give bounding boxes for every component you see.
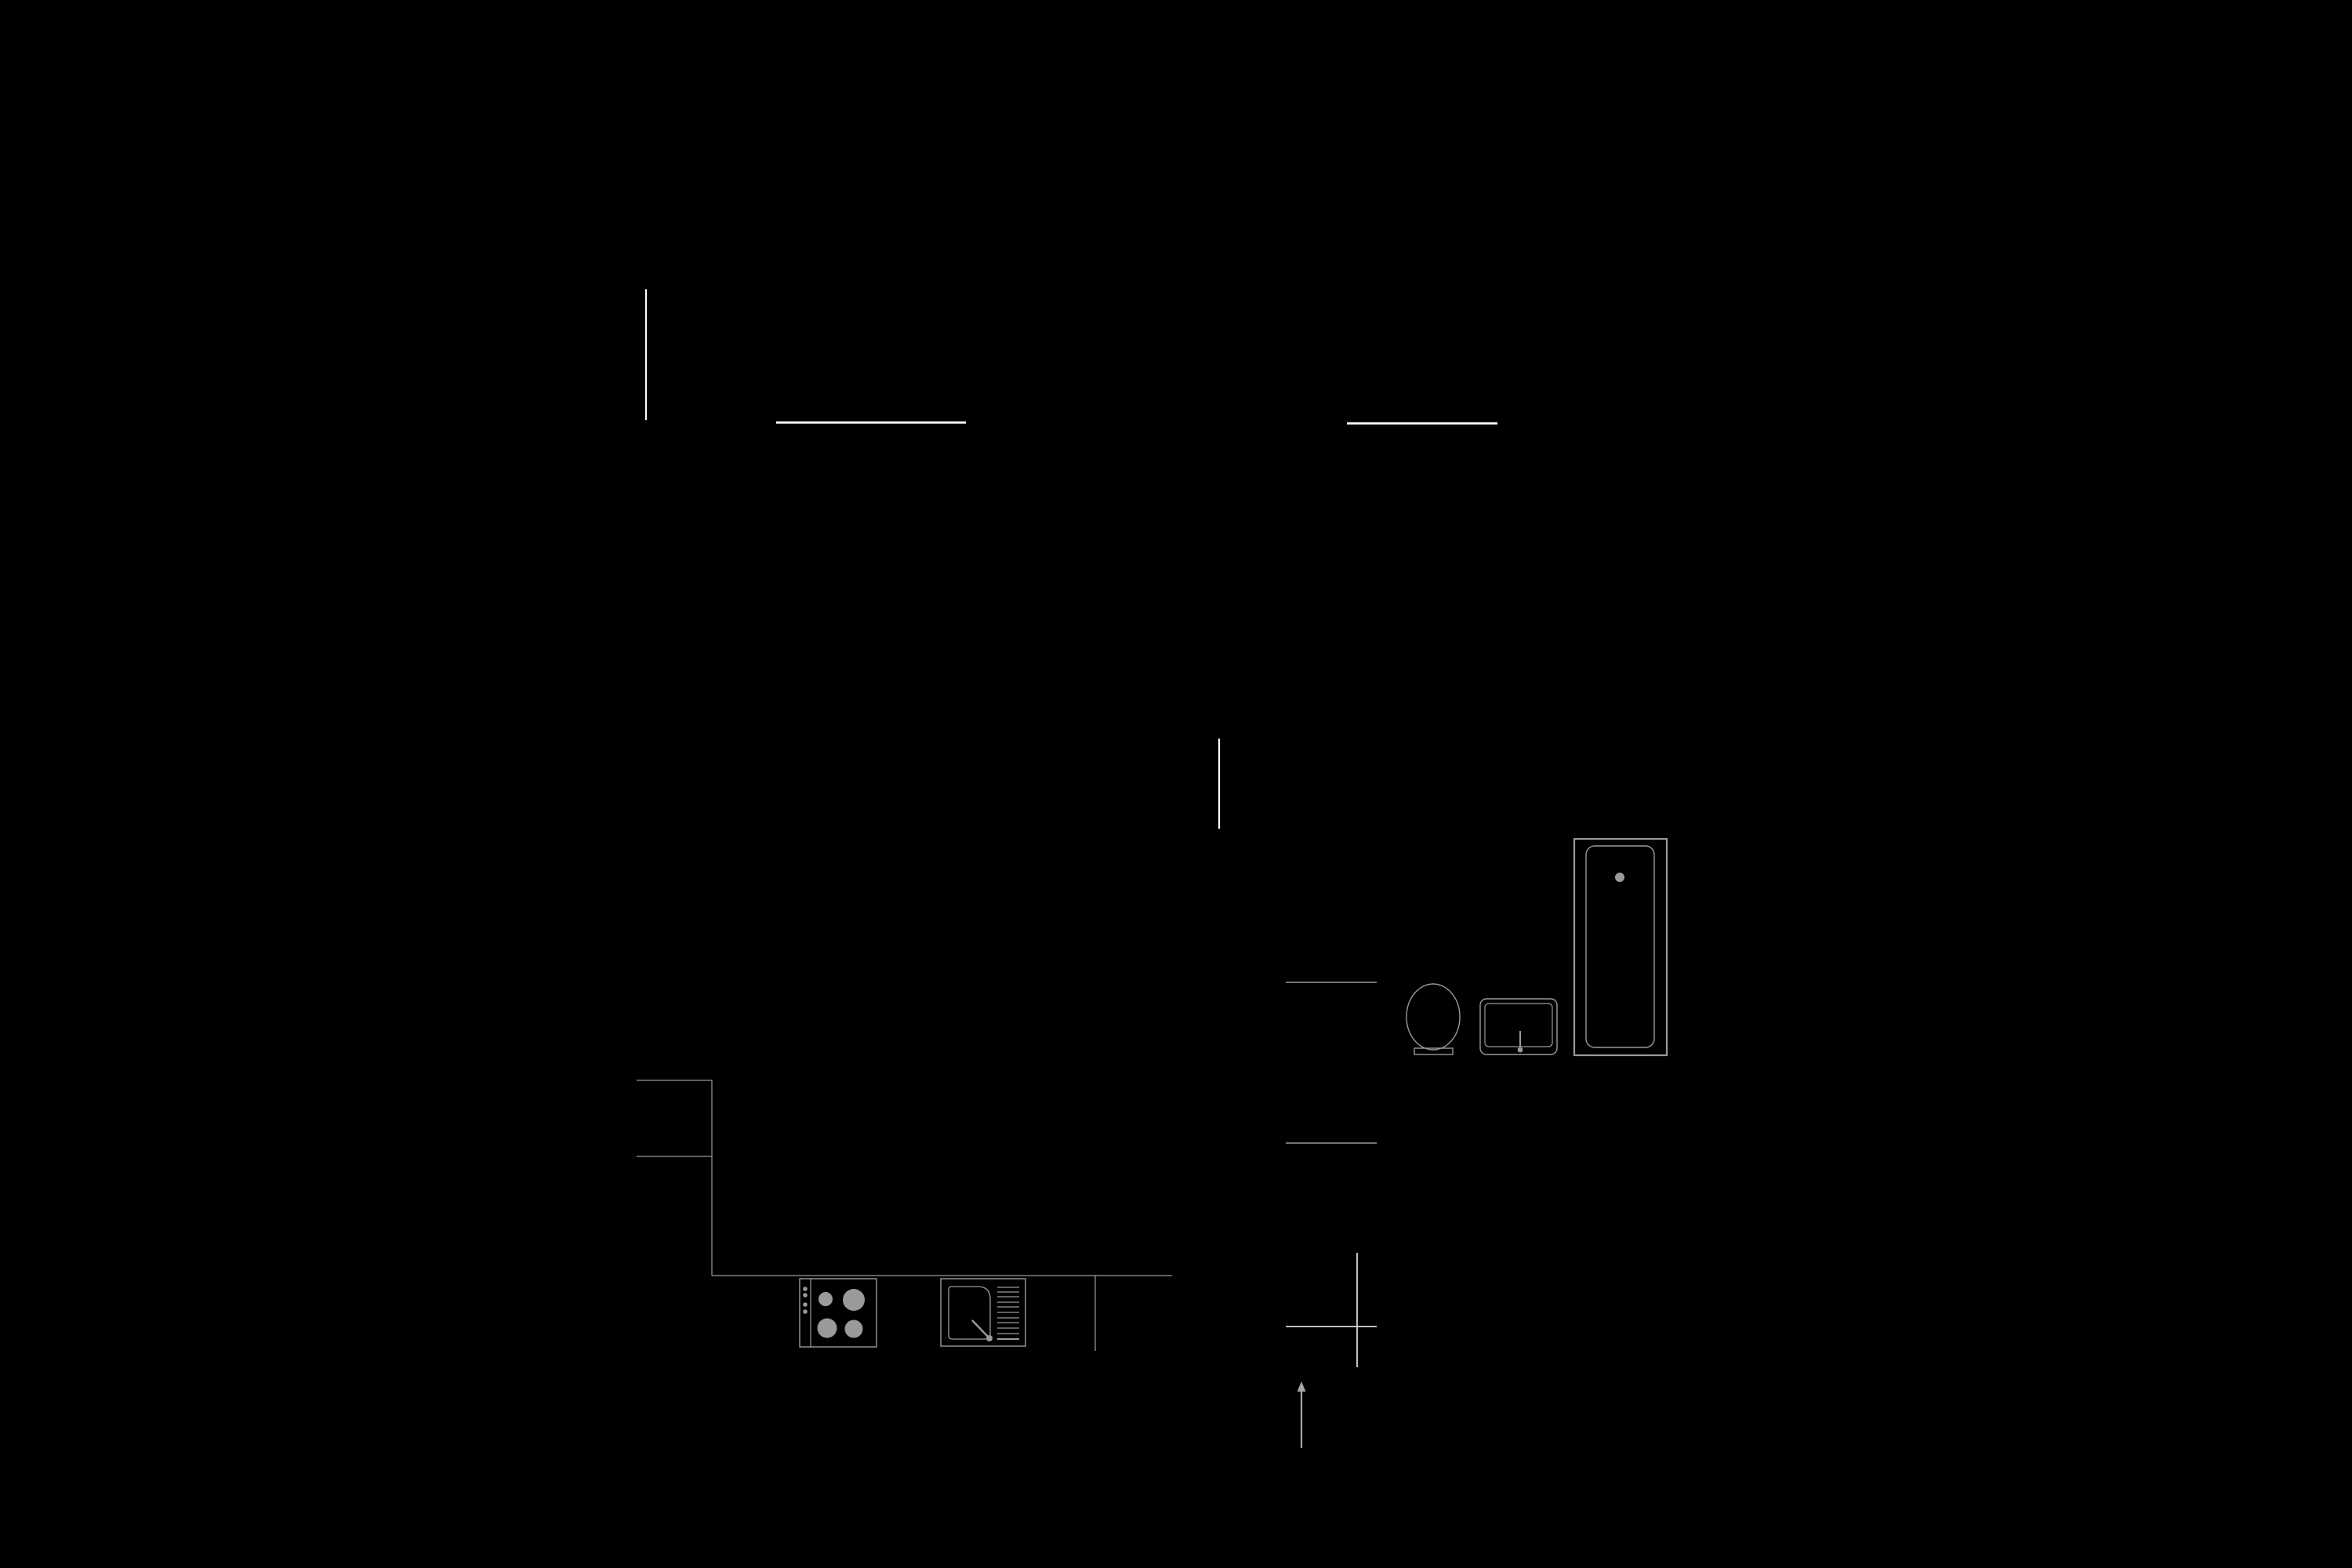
bathtub xyxy=(1574,839,1667,1055)
wall-openings xyxy=(646,289,1497,829)
stove-knob-3 xyxy=(803,1302,808,1307)
basin-outline xyxy=(1480,999,1557,1054)
north-arrow xyxy=(1298,1381,1306,1448)
plan-stage xyxy=(0,0,2352,1568)
floorplan-canvas[interactable] xyxy=(0,0,2352,1568)
stove-burner-top-left xyxy=(818,1292,833,1306)
kitchen-sink-faucet-dot xyxy=(986,1335,993,1341)
toilet xyxy=(1406,984,1460,1054)
stove-cooktop xyxy=(800,1279,877,1347)
stove-burner-top-right xyxy=(843,1289,865,1311)
kitchen-sink-basin xyxy=(949,1287,990,1339)
stove-outline xyxy=(800,1279,877,1347)
stove-knob-1 xyxy=(803,1287,808,1291)
basin-faucet-dot xyxy=(1518,1047,1523,1053)
toilet-base xyxy=(1414,1048,1453,1054)
stove-burner-bottom-left xyxy=(818,1319,837,1338)
stove-burner-bottom-right xyxy=(845,1320,863,1338)
bathtub-outline xyxy=(1574,839,1667,1055)
bathroom-sink xyxy=(1480,999,1557,1054)
bathtub-drain xyxy=(1615,873,1624,882)
stove-knob-2 xyxy=(803,1293,808,1298)
stove-knob-4 xyxy=(803,1309,808,1314)
kitchen-counter xyxy=(637,1080,1172,1351)
north-arrow-head xyxy=(1298,1381,1306,1392)
bathroom-wall-marks xyxy=(1286,982,1377,1143)
toilet-bowl xyxy=(1406,984,1460,1050)
basin-inner-rim xyxy=(1485,1004,1552,1047)
section-cross-marker xyxy=(1286,1253,1377,1367)
kitchen-sink xyxy=(941,1279,1025,1346)
kitchen-sink-faucet-arm xyxy=(972,1320,989,1338)
